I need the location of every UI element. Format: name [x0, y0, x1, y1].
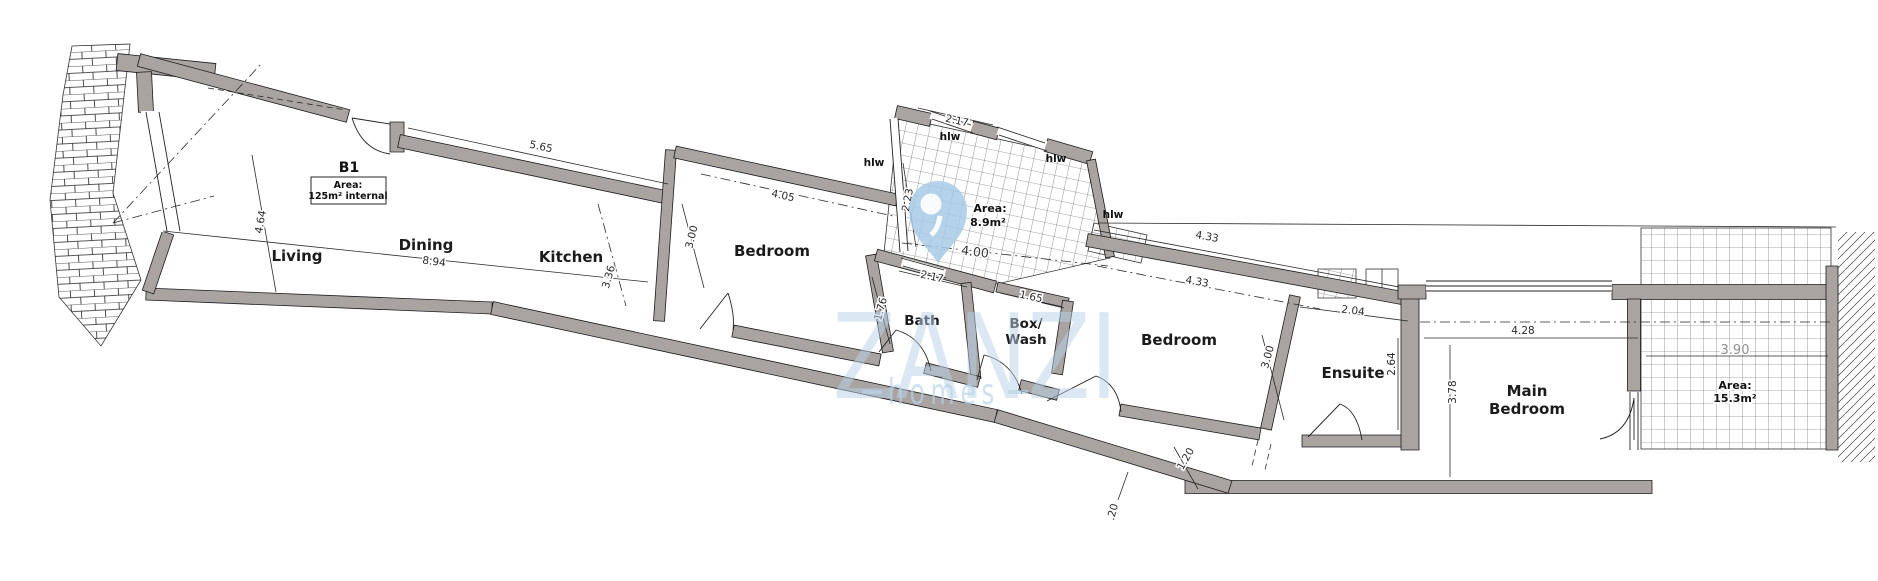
watermark-pin-hole [921, 194, 942, 215]
dim-ensuite-depth: 2.64 [1386, 352, 1398, 376]
wall-segment [1628, 299, 1641, 391]
wall-segment [146, 288, 492, 314]
room-label-dining: Dining [399, 236, 454, 254]
room-label-kitchen: Kitchen [539, 248, 603, 266]
hlw-label-3: hlw [1046, 153, 1067, 165]
room-label-bedroom1: Bedroom [734, 242, 810, 260]
terrace-grid-area [1641, 228, 1831, 449]
boundary-hatch [1838, 232, 1875, 462]
room-label-bedroom2: Bedroom [1141, 331, 1217, 349]
dim-bedroom2-inner: 4.33 [1184, 274, 1209, 290]
dim-bedroom1-depth: 3.00 [683, 224, 700, 250]
door-entrance [352, 118, 390, 154]
room-label-living: Living [271, 247, 322, 265]
dim-main-bedroom-width: 4.28 [1511, 325, 1534, 337]
room-label-main-bedroom: Bedroom [1489, 400, 1565, 418]
wall-segment [1302, 435, 1403, 447]
door-bedroom1 [700, 293, 733, 330]
watermark-tagline: homes [888, 372, 1000, 413]
wall-segment [1185, 481, 1652, 494]
door-terrace [1600, 398, 1634, 440]
wall-segment [1401, 293, 1419, 450]
unit-area-line2: 125m² internal [308, 191, 387, 202]
reference-line [1252, 440, 1258, 466]
dim-main-bedroom-depth: 3.78 [1447, 380, 1459, 403]
dim-living-dining: 8.94 [422, 255, 447, 270]
dim-kitchen-depth: 3.36 [600, 264, 618, 290]
party-wall-brick [50, 44, 141, 346]
hlw-label-2: hlw [940, 131, 961, 143]
dim-top-wall: 5.65 [528, 139, 553, 156]
reference-line [113, 63, 262, 223]
dim-living-depth: 4.64 [253, 209, 269, 234]
dim-bedroom2-outer: 4.33 [1194, 229, 1219, 245]
terrace-area-line1: Area: [1718, 379, 1751, 392]
wall-segment [142, 231, 173, 294]
shaft-area-line2: 8.9m² [970, 216, 1006, 229]
floor-plan: B1 Area: 125m² internal Living Dining Ki… [0, 0, 1878, 581]
wall-segment [654, 150, 677, 322]
wall-segment [1398, 285, 1426, 299]
terrace-area-line2: 15.3m² [1713, 392, 1757, 405]
wall-segment [137, 72, 154, 113]
dim-hall-gap: 1.20 [1175, 446, 1197, 472]
room-label-ensuite: Ensuite [1321, 364, 1384, 382]
shaft-area-line1: Area: [973, 202, 1006, 215]
hlw-label-1: hlw [864, 157, 885, 169]
wall-segment [137, 54, 349, 123]
dimension-line [1118, 472, 1128, 500]
dim-wall-thickness: .20 [1105, 502, 1121, 521]
hlw-label-4: hlw [1103, 209, 1124, 221]
dim-bedroom1-width: 4.05 [770, 188, 795, 205]
floor-plan-canvas: B1 Area: 125m² internal Living Dining Ki… [0, 0, 1878, 581]
dim-ensuite-width: 2.04 [1341, 304, 1366, 319]
dimension-line [1098, 223, 1836, 227]
unit-area-line1: Area: [334, 180, 363, 191]
dim-terrace-width: 3.90 [1721, 343, 1750, 358]
wall-segment [1612, 285, 1838, 300]
dim-shaft-top: 2.17 [944, 113, 969, 130]
room-label-main: Main [1507, 382, 1548, 400]
wall-segment [1826, 266, 1838, 450]
wall-segment [1119, 404, 1261, 440]
reference-line [1265, 444, 1271, 470]
unit-label: B1 [339, 160, 359, 176]
